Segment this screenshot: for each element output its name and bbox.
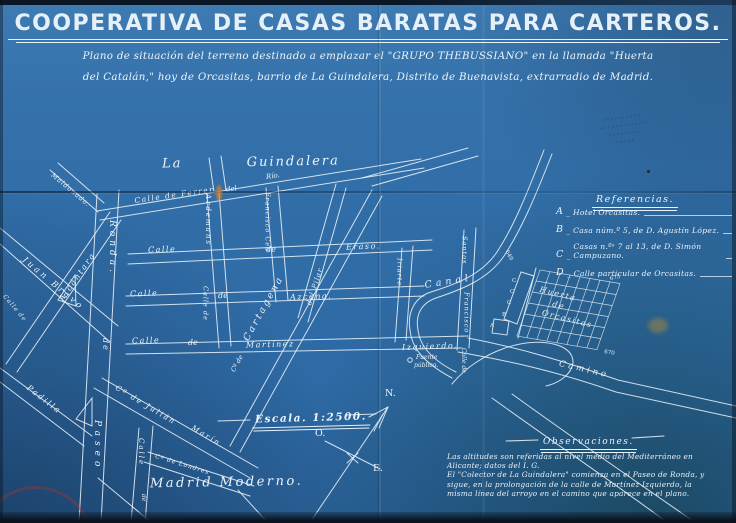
- street-label-azcona: Azcona.: [290, 292, 333, 301]
- subtitle-line-1: Plano de situación del terreno destinado…: [18, 51, 718, 61]
- observations-heading: Observaciones.: [540, 437, 637, 450]
- observations-line: sigue, en la prolongación de la calle de…: [447, 480, 733, 489]
- legend-item: A _ Hotel Orcasitas.: [556, 206, 732, 217]
- block-letter-b: B: [502, 313, 506, 319]
- street-label-santos: Santos: [461, 236, 468, 264]
- legend-list: A _ Hotel Orcasitas. B _ Casa núm.º 5, d…: [556, 206, 732, 285]
- legend-rule: [700, 276, 732, 277]
- subtitle-line-2: del Catalán," hoy de Orcasitas, barrio d…: [18, 72, 718, 82]
- legend-key: B: [556, 224, 563, 235]
- block-letter-c: C: [507, 301, 511, 307]
- page-title-wrap: COOPERATIVA DE CASAS BARATAS PARA CARTER…: [0, 13, 736, 35]
- legend-text: Calle particular de Orcasitas.: [574, 269, 696, 278]
- legend-item: C _ Casas n.ºˢ 7 al 13, de D. Simón Camp…: [556, 242, 732, 260]
- observations-text: Las altitudes son referidas al nivel med…: [447, 452, 733, 498]
- compass-east: E.: [373, 464, 383, 474]
- legend-sep: _: [566, 226, 570, 235]
- block-letter-a: A: [490, 324, 494, 330]
- street-label-ronda: Ronda.: [107, 220, 116, 276]
- scale-bar: Escala. 1:2500.: [252, 406, 370, 425]
- street-maldonado: [50, 163, 104, 212]
- area-la-guindalera: La Guindalera: [162, 154, 340, 170]
- street-label-martinez-de: de: [188, 339, 198, 347]
- street-label-calle-v: Calle: [137, 438, 144, 466]
- area-la: La: [162, 156, 183, 171]
- legend-item: D _ Calle particular de Orcasitas.: [556, 267, 732, 278]
- legend-rule: [644, 215, 732, 216]
- observations-line: El "Colector de La Guindalera" comienza …: [447, 470, 733, 479]
- street-label-ferrer-del: del: [226, 185, 238, 193]
- street-label-eraso-calle: Calle: [148, 246, 177, 255]
- legend-rule: [723, 233, 732, 234]
- legend-heading-wrap: Referencias.: [570, 189, 700, 205]
- street-label-francisco-cea: Francisco Cea: [264, 192, 271, 252]
- compass-north: N.: [385, 389, 396, 399]
- street-label-azcona-calle: Calle: [130, 290, 159, 299]
- street-top-fork: [362, 148, 478, 186]
- street-label-ardemans-calle: Calle de: [202, 286, 209, 321]
- street-label-paseo-de: de: [101, 338, 109, 352]
- block-letter-c: C: [512, 279, 516, 285]
- fountain-icon: [408, 358, 413, 363]
- street-label-martinez-calle: Calle: [132, 337, 160, 346]
- legend-text: Casas n.ºˢ 7 al 13, de D. Simón Campuzan…: [573, 242, 722, 260]
- street-label-eraso-de: de: [266, 246, 276, 254]
- street-label-calle-v-de: de: [140, 494, 146, 501]
- poi-fuente-line2: pública.: [414, 363, 438, 369]
- page-title: COOPERATIVA DE CASAS BARATAS PARA CARTER…: [8, 11, 727, 40]
- compass-west: O.: [315, 429, 325, 439]
- poi-fuente-line1: Fuente: [416, 355, 437, 361]
- legend-sep: _: [567, 251, 571, 260]
- street-label-santos-calle: Calle de: [460, 348, 466, 373]
- street-label-francisco: Francisco: [463, 292, 470, 333]
- observations-heading-wrap: Observaciones.: [540, 431, 637, 447]
- legend-key: D: [556, 267, 564, 278]
- observations-line: Las altitudes son referidas al nivel med…: [447, 452, 733, 461]
- legend-text: Hotel Orcasitas.: [573, 208, 640, 217]
- legend-sep: _: [566, 208, 570, 217]
- street-label-iriarte: Iriarte: [396, 258, 403, 286]
- street-label-azcona-de: de: [218, 292, 228, 300]
- area-madrid-moderno: Madrid Moderno.: [150, 475, 303, 491]
- street-label-eraso: Eraso.: [346, 242, 381, 251]
- legend-sep: _: [567, 269, 571, 278]
- legend-text: Casa núm.º 5, de D. Agustín López.: [573, 226, 719, 235]
- blueprint-map: COOPERATIVA DE CASAS BARATAS PARA CARTER…: [0, 0, 736, 523]
- area-guindalera: Guindalera: [247, 153, 340, 170]
- legend-item: B _ Casa núm.º 5, de D. Agustín López.: [556, 224, 732, 235]
- observations-line: misma línea del arroyo en el camino que …: [447, 489, 733, 498]
- observations-line: Alicante; datos del I. G.: [447, 461, 733, 470]
- scale-label: Escala. 1:2500.: [252, 410, 370, 428]
- block-letter-c: C: [510, 290, 514, 296]
- legend-key: A: [556, 206, 563, 217]
- legend-key: C: [556, 249, 564, 260]
- street-label-ardemans: Ardemans: [204, 194, 211, 246]
- street-label-martinez: Martínez: [246, 340, 295, 349]
- street-label-paseo: Paseo: [92, 420, 101, 471]
- legend-rule: [726, 258, 732, 259]
